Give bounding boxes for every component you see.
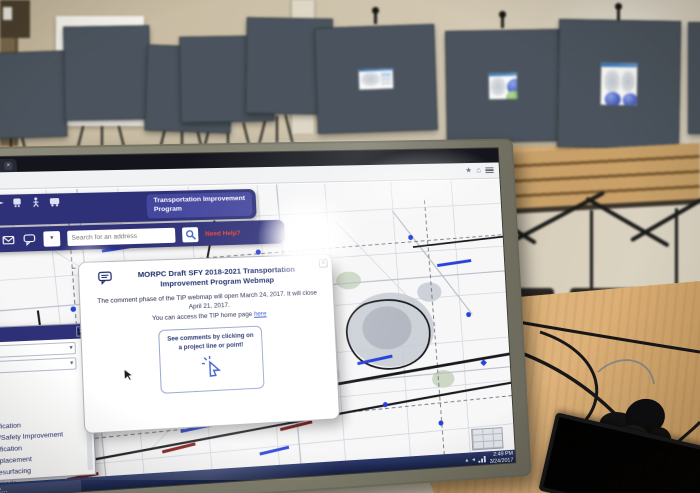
welcome-dialog: × MORPC Draft SFY 2018-2021 Transportati… [78, 254, 340, 434]
mail-icon[interactable] [1, 233, 15, 247]
laptop-bezel: …Y 2018 – × apps.morpc.org/tip/ ★ ⌂ [0, 139, 532, 493]
chevron-down-icon: ▾ [69, 343, 73, 354]
menu-icon[interactable] [485, 167, 494, 174]
easel-apex [617, 8, 620, 20]
search-input[interactable] [67, 227, 175, 245]
bookmark-star-icon[interactable]: ★ [465, 167, 472, 175]
callout-box: See comments by clicking on a project li… [158, 326, 264, 394]
poster-board [688, 22, 700, 134]
train-icon[interactable] [11, 197, 24, 208]
poster-board [557, 19, 681, 149]
transport-mode-icons [0, 196, 61, 210]
dialog-title: MORPC Draft SFY 2018-2021 Transportation… [117, 264, 316, 292]
callout-text: See comments by clicking on a project li… [165, 332, 255, 354]
bus-icon[interactable] [48, 196, 61, 206]
search-button[interactable] [182, 227, 199, 242]
program-title-box: Transportation Improvement Program [146, 192, 252, 219]
tab-close-icon[interactable]: × [4, 161, 13, 169]
network-icon[interactable] [478, 455, 486, 462]
door-sign [3, 7, 12, 20]
basemap-dropdown[interactable]: ▾ [43, 231, 60, 247]
poster-board [63, 25, 151, 120]
plane-icon[interactable] [0, 198, 5, 209]
click-cursor-icon [200, 354, 225, 379]
dialog-body: The comment phase of the TIP webmap will… [93, 288, 321, 327]
search-icon [185, 229, 196, 240]
photo-scene: …Y 2018 – × apps.morpc.org/tip/ ★ ⌂ [0, 0, 700, 493]
tray-expand-icon[interactable]: ▴ [465, 457, 468, 463]
taskbar-clock[interactable]: 2:49 PM 3/24/2017 [489, 450, 513, 465]
need-help-link[interactable]: Need Help? [205, 229, 241, 237]
legend-items: ✓ New Interchange ✓ Major Widening ✓ New… [0, 382, 96, 493]
tray-back-icon[interactable]: ◂ [472, 457, 475, 463]
laptop-screen: …Y 2018 – × apps.morpc.org/tip/ ★ ⌂ [0, 147, 516, 493]
taskbar-app-button[interactable]: MORPC Draft SFY 2… [0, 479, 81, 493]
pedestrian-icon[interactable] [29, 197, 42, 207]
comment-icon[interactable] [22, 232, 36, 246]
poster-board [445, 29, 561, 143]
overview-map-toggle[interactable] [471, 427, 503, 450]
comment-bubble-icon [97, 271, 112, 285]
tip-home-link[interactable]: here [254, 311, 267, 318]
easel-apex [501, 16, 504, 28]
poster-board [0, 51, 67, 140]
program-title-line2: Program [154, 203, 246, 214]
dialog-close-icon[interactable]: × [319, 259, 328, 268]
easel-apex [374, 12, 377, 24]
mouse-cursor [123, 368, 136, 382]
system-tray: ▴ ◂ 2:49 PM 3/24/2017 [465, 450, 516, 467]
webmap-page: CHAMPAIGN COUNTY MADISON COUNTY LBRS, US… [0, 179, 516, 493]
taskbar-app-label: MORPC Draft SFY 2… [0, 487, 8, 493]
laptop: …Y 2018 – × apps.morpc.org/tip/ ★ ⌂ [0, 139, 532, 493]
poster-board [314, 24, 438, 134]
chevron-down-icon: ▾ [70, 358, 74, 369]
home-icon[interactable]: ⌂ [476, 167, 481, 175]
